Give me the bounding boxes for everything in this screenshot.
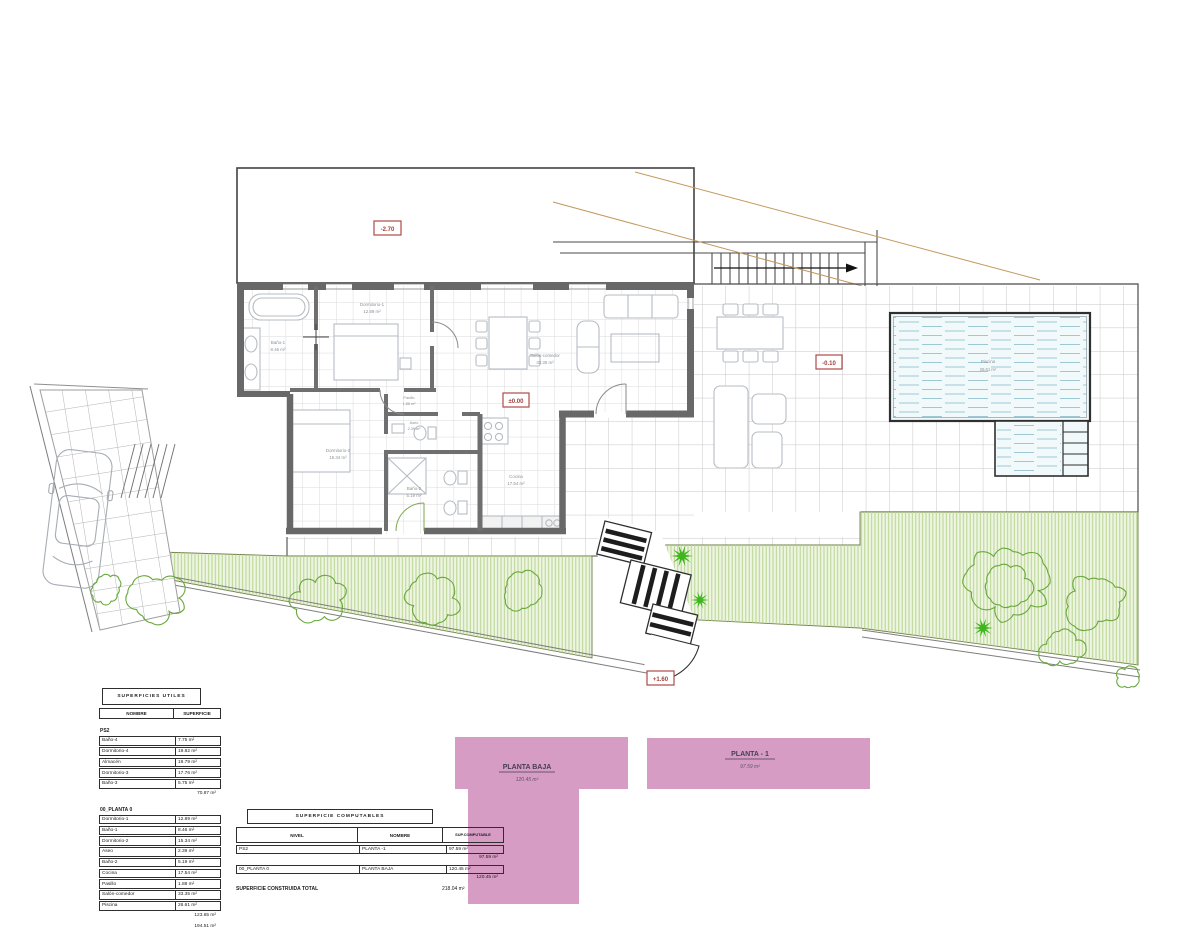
area-row: Aseo2.39 m² [99, 847, 221, 857]
room-label: Dormitorio-1 [360, 302, 385, 307]
computable-row: 00_PLANTA 0PLANTA BAJA120.45 m² [236, 865, 504, 874]
bed [334, 324, 398, 380]
planta-menos-1-label: PLANTA - 1 [731, 751, 769, 758]
room-name-cell: Pasillo [100, 880, 176, 888]
superficies-utiles-table: SUPERFICIES UTILES NOMBRE SUPERFICIE PS2… [99, 688, 221, 931]
col-header-nombre: NOMBRE [100, 709, 174, 718]
section-label: 00_PLANTA 0 [100, 807, 221, 813]
outdoor-dining-table [717, 317, 783, 349]
bed [292, 410, 350, 472]
room-name-cell: Baño-2 [100, 859, 176, 867]
pool-label: Piscina [981, 359, 996, 364]
nombre-cell: PLANTA -1 [360, 845, 447, 854]
room-area-cell: 7.75 m² [176, 737, 220, 745]
driveway [34, 384, 180, 630]
computable-row: PS2PLANTA -197.59 m² [236, 845, 504, 854]
room-area-cell: 19.79 m² [176, 759, 220, 767]
aseo-sink [392, 424, 404, 433]
room-area-cell: 8.46 m² [176, 827, 220, 835]
area-row: Baño-47.75 m² [99, 736, 221, 746]
computables-header: NIVEL NOMBRE SUP.COMPUTABLE [236, 827, 504, 843]
computable-subtotal: 120.45 m² [236, 875, 504, 883]
room-area-cell: 15.34 m² [176, 837, 220, 845]
floor-plan-sheet: Piscina 26.61 m² [0, 0, 1200, 940]
svg-text:5.19 m²: 5.19 m² [407, 493, 422, 498]
upper-terrace [237, 168, 877, 290]
room-name-cell: Aseo [100, 848, 176, 856]
dining-table [489, 317, 527, 369]
toilet [444, 471, 456, 485]
area-row: Cocina17.54 m² [99, 869, 221, 879]
nivel-cell: 00_PLANTA 0 [236, 865, 360, 874]
room-name-cell: Baño-1 [100, 827, 176, 835]
room-label: Baño-1 [271, 340, 286, 345]
nivel-cell: PS2 [236, 845, 360, 854]
total-value: 218.04 m² [442, 886, 504, 892]
room-name-cell: Dormitorio-3 [100, 769, 176, 777]
area-row: Dormitorio-112.89 m² [99, 815, 221, 825]
utiles-sections: PS2Baño-47.75 m²Dormitorio-419.82 m²Alma… [99, 728, 221, 931]
area-row: Baño-35.75 m² [99, 779, 221, 789]
room-label: Aseo [410, 421, 419, 425]
room-area-cell: 17.76 m² [176, 769, 220, 777]
computable-subtotal: 97.59 m² [236, 855, 504, 863]
room-name-cell: Almacén [100, 759, 176, 767]
room-label: Dormitorio-2 [326, 448, 351, 453]
svg-text:33.35 m²: 33.35 m² [536, 360, 554, 365]
computables-rows: PS2PLANTA -197.59 m²97.59 m²00_PLANTA 0P… [236, 845, 504, 883]
room-label: Cocina [509, 474, 523, 479]
stair-direction-arrow [846, 264, 858, 273]
room-area-cell: 2.39 m² [176, 848, 220, 856]
cooktop-island [480, 418, 508, 444]
sup-cell: 97.59 m² [447, 845, 504, 854]
area-row: Pasillo1.88 m² [99, 879, 221, 889]
planta-baja-area: 120.45 m² [516, 777, 539, 783]
room-area-cell: 5.19 m² [176, 859, 220, 867]
svg-text:15.34 m²: 15.34 m² [329, 455, 347, 460]
svg-text:8.46 m²: 8.46 m² [271, 347, 286, 352]
svg-text:±0.00: ±0.00 [509, 399, 525, 405]
col-header-superficie: SUPERFICIE [174, 709, 220, 718]
outdoor-sofa [714, 386, 748, 468]
col-header-sup-computable: SUP.COMPUTABLE [443, 828, 503, 842]
nombre-cell: PLANTA BAJA [360, 865, 447, 874]
col-header-nivel: NIVEL [237, 828, 358, 842]
area-row: Baño-25.19 m² [99, 858, 221, 868]
svg-text:1.88 m²: 1.88 m² [403, 402, 417, 406]
area-row: Dormitorio-317.76 m² [99, 768, 221, 778]
grand-total: 194.51 m² [99, 924, 221, 931]
room-name-cell: Baño-4 [100, 737, 176, 745]
area-row: Baño-18.46 m² [99, 826, 221, 836]
pool-area-label: 26.61 m² [980, 367, 997, 372]
room-area-cell: 19.82 m² [176, 748, 220, 756]
room-area-cell: 17.54 m² [176, 870, 220, 878]
svg-text:-0.10: -0.10 [822, 361, 836, 367]
room-name-cell: Dormitorio-1 [100, 816, 176, 824]
computables-title: SUPERFICIE COMPUTABLES [247, 809, 433, 824]
room-area-cell: 12.89 m² [176, 816, 220, 824]
sofa [604, 295, 678, 318]
planta-menos-1-area: 97.59 m² [740, 764, 760, 770]
svg-text:-2.70: -2.70 [381, 227, 395, 233]
area-row: Salón-comedor33.35 m² [99, 890, 221, 900]
total-label: SUPERFICIE CONSTRUIDA TOTAL [236, 886, 442, 892]
section-subtotal: 123.65 m² [99, 913, 221, 920]
computables-total-row: SUPERFICIE CONSTRUIDA TOTAL 218.04 m² [236, 886, 504, 892]
area-row: Dormitorio-215.34 m² [99, 836, 221, 846]
svg-text:12.89 m²: 12.89 m² [363, 309, 381, 314]
room-name-cell: Baño-3 [100, 780, 176, 788]
col-header-nombre: NOMBRE [358, 828, 443, 842]
room-area-cell: 33.35 m² [176, 891, 220, 899]
floor-key-shapes: PLANTA BAJA 120.45 m² PLANTA - 1 97.59 m… [455, 737, 870, 904]
planta-baja-label: PLANTA BAJA [503, 764, 552, 771]
svg-text:+1.60: +1.60 [653, 677, 669, 683]
section-label: PS2 [100, 728, 221, 734]
svg-text:17.54 m²: 17.54 m² [507, 481, 525, 486]
utiles-title: SUPERFICIES UTILES [102, 688, 201, 705]
room-name-cell: Salón-comedor [100, 891, 176, 899]
room-label: Baño-2 [407, 486, 422, 491]
room-name-cell: Dormitorio-4 [100, 748, 176, 756]
room-name-cell: Piscina [100, 902, 176, 910]
room-name-cell: Dormitorio-2 [100, 837, 176, 845]
section-subtotal: 70.87 m² [99, 791, 221, 798]
sup-cell: 120.45 m² [447, 865, 504, 874]
area-row: Piscina26.61 m² [99, 901, 221, 911]
room-area-cell: 5.75 m² [176, 780, 220, 788]
area-row: Dormitorio-419.82 m² [99, 747, 221, 757]
room-name-cell: Cocina [100, 870, 176, 878]
area-row: Almacén19.79 m² [99, 758, 221, 768]
superficie-computables-table: SUPERFICIE COMPUTABLES NIVEL NOMBRE SUP.… [236, 809, 504, 892]
room-area-cell: 26.61 m² [176, 902, 220, 910]
room-area-cell: 1.88 m² [176, 880, 220, 888]
room-label: Salón-comedor [530, 353, 560, 358]
svg-text:2.39 m²: 2.39 m² [408, 427, 422, 431]
room-label: Pasillo [403, 396, 414, 400]
toilet [444, 501, 456, 515]
utiles-header: NOMBRE SUPERFICIE [99, 708, 221, 719]
